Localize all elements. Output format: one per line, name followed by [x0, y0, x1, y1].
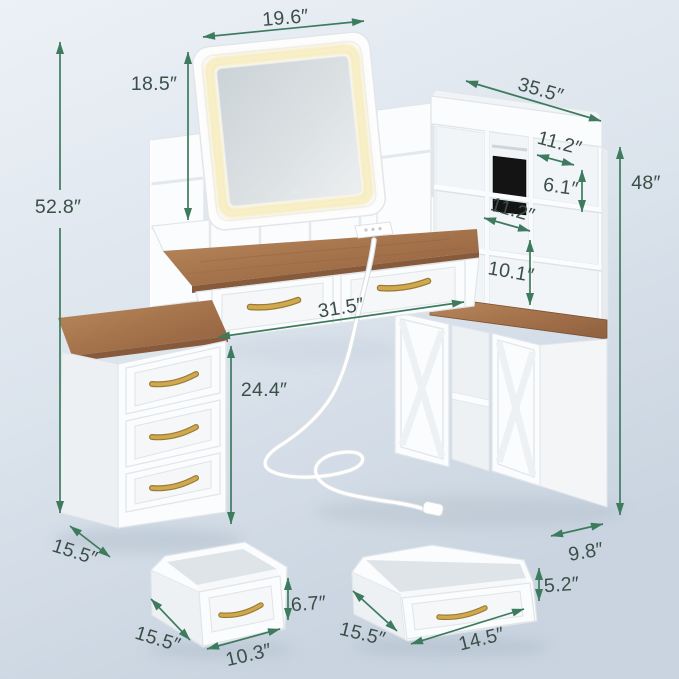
barn-cabinet-side: [540, 339, 607, 507]
mirror-glass: [216, 56, 361, 207]
hutch-right-side: [602, 147, 608, 340]
left-cabinet: [58, 300, 228, 528]
dim-label-large-drawer-height: 5.2″: [543, 573, 580, 597]
dim-label-mirror-width: 19.6″: [261, 5, 309, 31]
dim-label-overall-height: 52.8″: [35, 196, 81, 218]
product-dimension-diagram: 19.6″ 18.5″ 52.8″ 35.5″ 11.2″ 6.1″ 48″ 1…: [0, 0, 679, 679]
scene: 19.6″ 18.5″ 52.8″ 35.5″ 11.2″ 6.1″ 48″ 1…: [0, 0, 679, 679]
left-cabinet-side: [58, 352, 118, 528]
dim-label-small-drawer-height: 6.7″: [290, 592, 327, 616]
led-mirror: [191, 30, 387, 231]
dim-label-knee-clearance: 24.4″: [241, 379, 287, 401]
dim-label-mirror-height: 18.5″: [131, 73, 177, 95]
dim-label-hutch-height: 48″: [631, 172, 661, 194]
